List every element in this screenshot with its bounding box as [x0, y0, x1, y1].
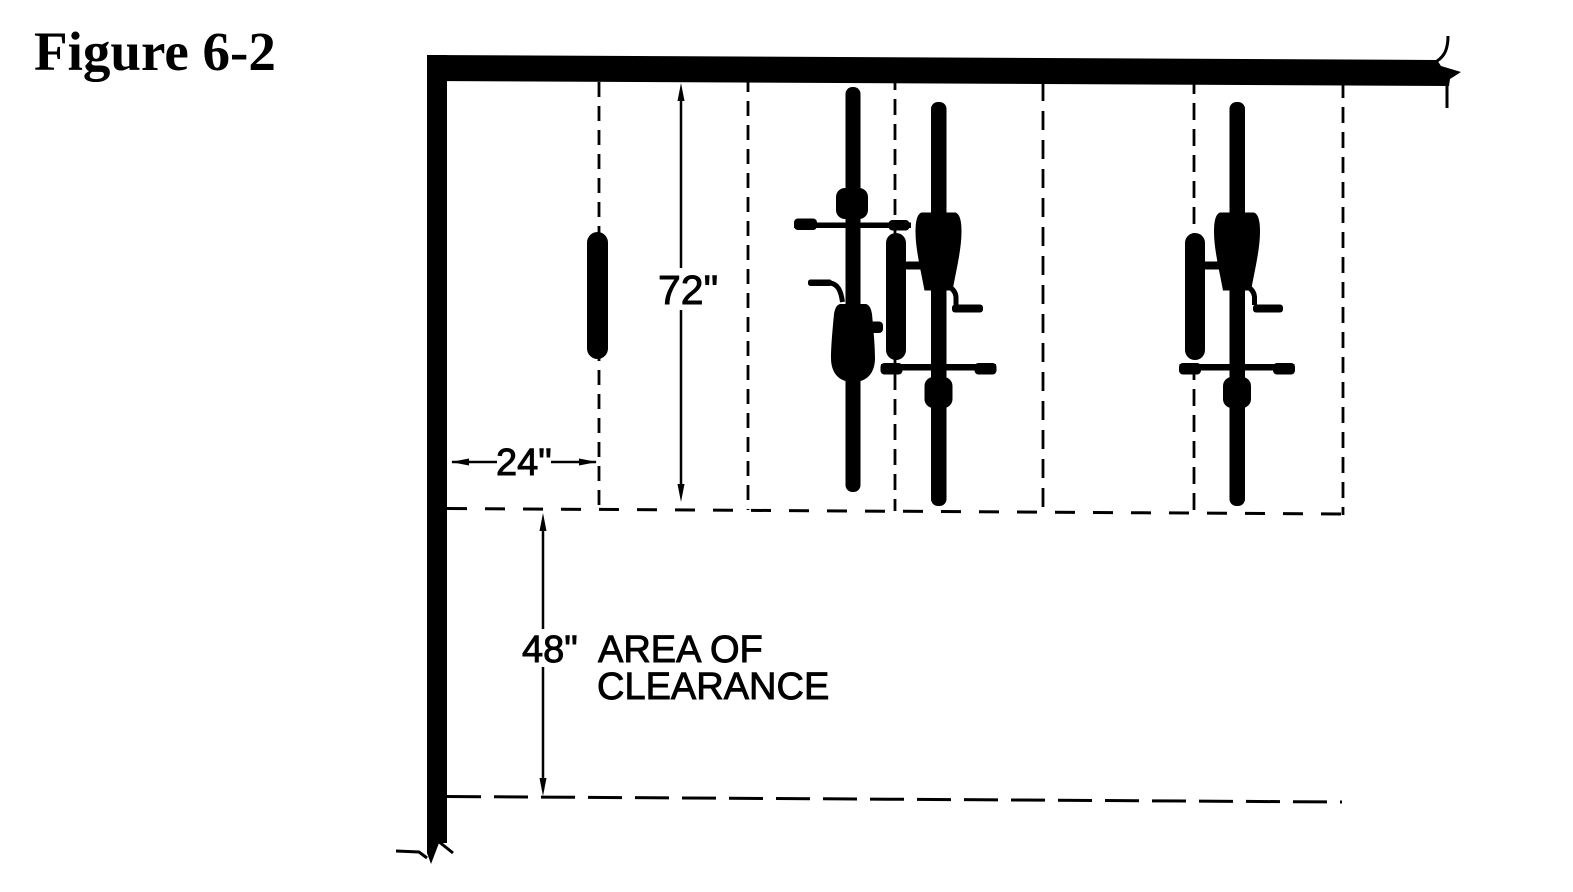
svg-text:CLEARANCE: CLEARANCE — [597, 666, 829, 708]
svg-text:Figure 6-2: Figure 6-2 — [34, 21, 276, 82]
svg-text:72": 72" — [658, 267, 718, 313]
svg-text:48": 48" — [522, 629, 578, 671]
svg-text:24": 24" — [496, 442, 552, 484]
svg-text:AREA OF: AREA OF — [598, 629, 763, 671]
